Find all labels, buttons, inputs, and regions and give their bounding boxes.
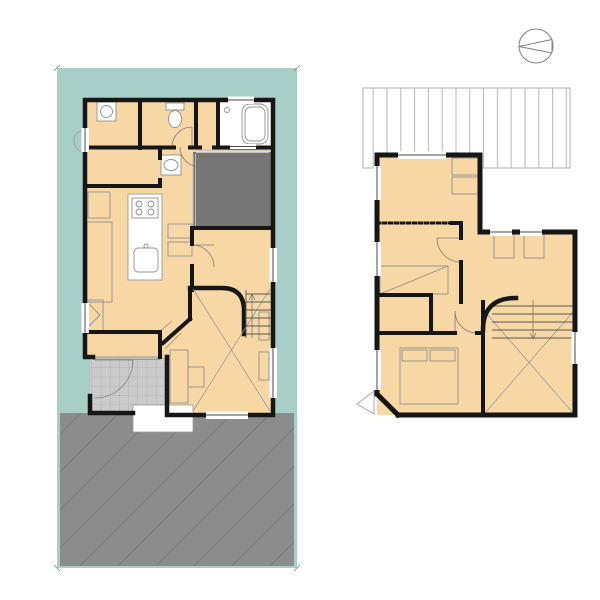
floor-plan-drawing [0, 0, 600, 600]
parking-area [60, 413, 294, 566]
terrace-deck [193, 152, 271, 228]
compass-icon [519, 29, 553, 63]
corner-chamfer-2f [357, 391, 374, 414]
boundary-left [8, 313, 102, 322]
planting-box [133, 405, 193, 432]
floor-plan-canvas [0, 0, 600, 600]
boundary-right [256, 316, 350, 325]
